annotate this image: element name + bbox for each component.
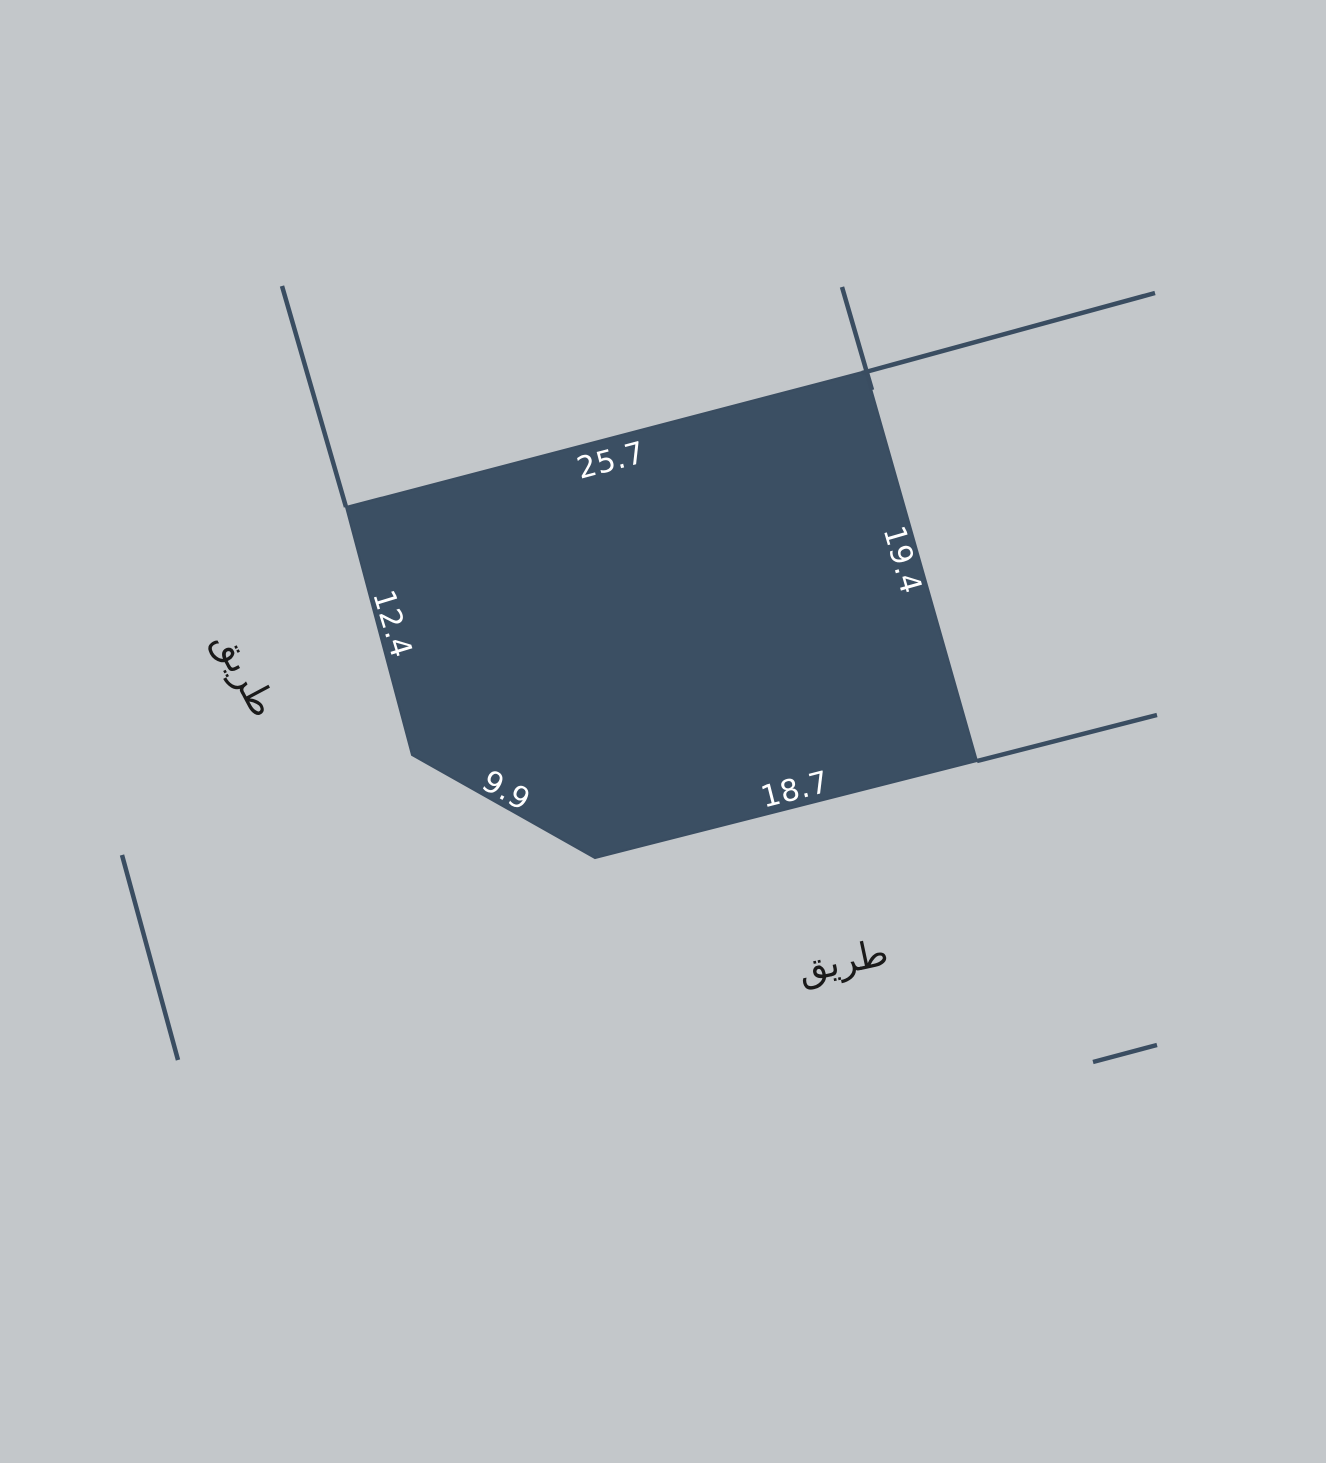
parcel-polygon[interactable] <box>346 371 977 858</box>
boundary-line-bottom-left <box>122 855 178 1060</box>
road-label-bottom: طريق <box>794 931 892 992</box>
road-label-left: طريق <box>205 624 286 725</box>
boundary-line-bottom-right <box>977 715 1157 761</box>
boundary-line-bottom-right-short <box>1093 1045 1157 1062</box>
map-stage: 25.7 19.4 18.7 9.9 12.4 طريق طريق <box>0 0 1326 1463</box>
boundary-line-top-left <box>282 286 346 507</box>
boundary-line-top-right-horizontal <box>862 293 1155 373</box>
cadastral-plot-map: 25.7 19.4 18.7 9.9 12.4 طريق طريق <box>0 0 1326 1463</box>
